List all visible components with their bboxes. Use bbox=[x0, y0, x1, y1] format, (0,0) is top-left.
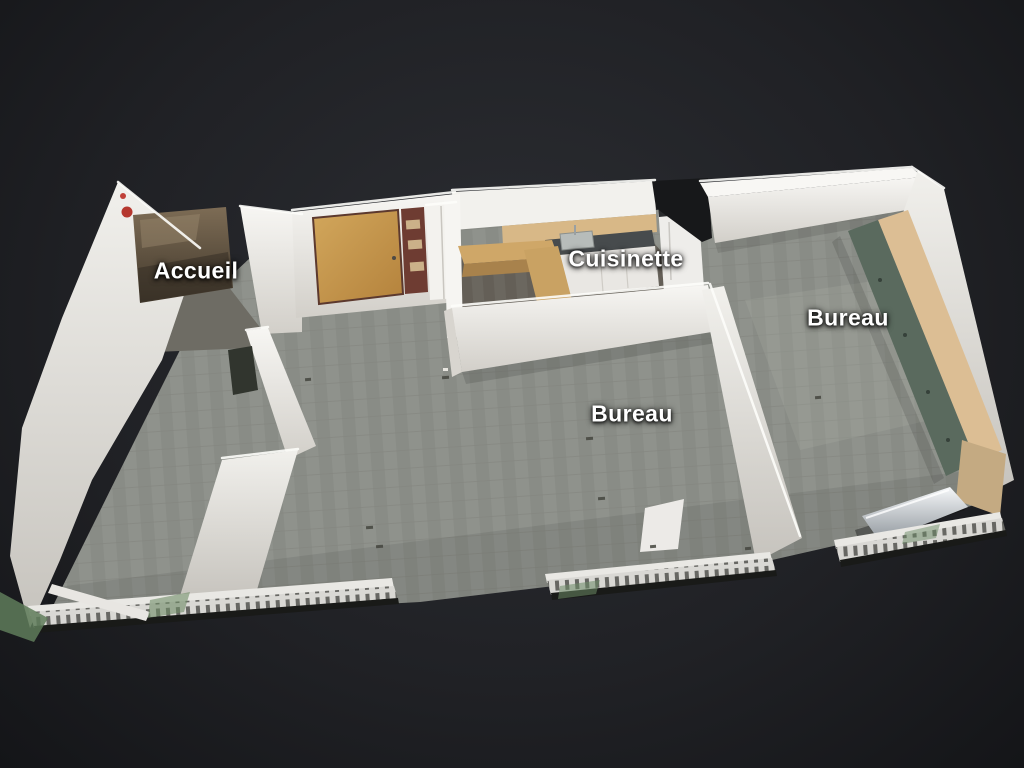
dollhouse-3d-view[interactable]: Accueil Cuisinette Bureau Bureau bbox=[0, 0, 1024, 768]
room-label-bureau-right[interactable]: Bureau bbox=[807, 305, 889, 332]
fire-alarm-icon bbox=[122, 207, 133, 218]
room-label-cuisinette[interactable]: Cuisinette bbox=[568, 246, 683, 273]
room-label-bureau-center[interactable]: Bureau bbox=[591, 401, 673, 428]
room-label-accueil[interactable]: Accueil bbox=[154, 258, 239, 285]
floorplan-render bbox=[0, 0, 1024, 768]
fire-alarm-small-icon bbox=[120, 193, 126, 199]
door-knob bbox=[392, 256, 396, 260]
floor-paper-scrap bbox=[443, 368, 448, 371]
entry-door bbox=[313, 210, 403, 304]
